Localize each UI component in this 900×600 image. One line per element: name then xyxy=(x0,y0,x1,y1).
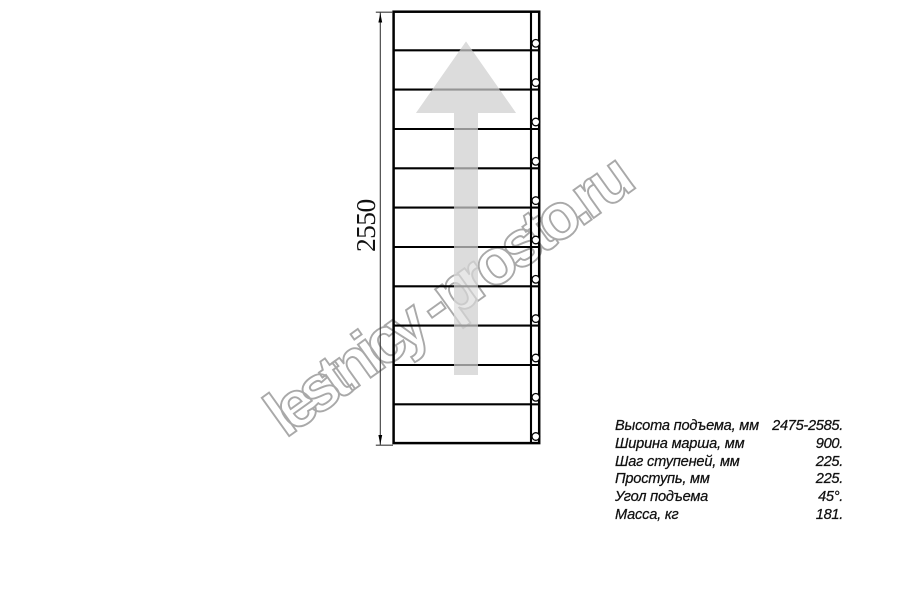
svg-text:lestnicy-prosto.ru: lestnicy-prosto.ru xyxy=(251,138,647,450)
svg-text:2550: 2550 xyxy=(350,199,381,252)
